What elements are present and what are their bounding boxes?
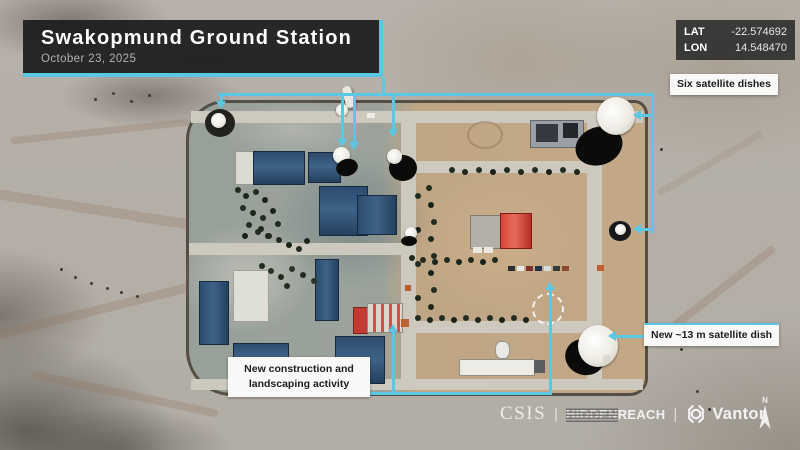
callout-construction-line1: New construction and xyxy=(232,362,366,377)
car-white xyxy=(367,113,375,118)
building-red-roof-construction xyxy=(353,307,368,334)
west-road-horizontal xyxy=(189,243,404,255)
callout-six-dishes-text: Six satellite dishes xyxy=(677,78,771,90)
tree-row xyxy=(255,229,261,235)
callout-construction-line2: landscaping activity xyxy=(232,377,366,392)
lot-road-top xyxy=(413,161,591,173)
date-label: October 23, 2025 xyxy=(41,53,379,65)
annotation-line xyxy=(392,331,395,393)
north-arrow-icon xyxy=(758,405,772,431)
satellite-dish xyxy=(211,113,226,128)
separator: | xyxy=(554,406,558,423)
annotation-line xyxy=(353,93,356,143)
vehicle xyxy=(544,266,551,271)
vantor-logo: Vantor xyxy=(685,403,765,425)
callout-construction: New construction and landscaping activit… xyxy=(228,357,370,397)
annotation-bracket-line xyxy=(218,93,654,96)
dish-shadow xyxy=(401,236,417,246)
building-white-flat xyxy=(233,270,269,322)
building-blue-roof xyxy=(315,259,339,321)
container-white xyxy=(484,247,493,253)
annotation-line xyxy=(341,93,344,140)
vehicle xyxy=(553,266,560,271)
title-panel: Swakopmund Ground Station October 23, 20… xyxy=(23,20,383,77)
vehicle xyxy=(535,266,542,271)
vehicle xyxy=(562,266,569,271)
arrow-down-icon xyxy=(337,139,347,147)
latitude-row: LAT -22.574692 xyxy=(684,24,787,40)
arrow-down-icon xyxy=(388,129,398,137)
building-white-roof xyxy=(235,151,255,185)
callout-new-dish-text: New ~13 m satellite dish xyxy=(651,329,772,341)
tree-cluster xyxy=(235,187,241,193)
arrow-left-icon xyxy=(633,110,641,120)
large-satellite-dish xyxy=(597,97,635,135)
vehicle xyxy=(517,266,524,271)
annotation-line xyxy=(356,392,552,395)
north-label: N xyxy=(762,396,768,405)
annotation-line xyxy=(392,93,395,130)
annotation-line xyxy=(549,289,552,395)
arrow-up-icon xyxy=(545,282,555,290)
lat-label: LAT xyxy=(684,24,705,40)
north-indicator: N xyxy=(757,396,773,431)
vehicle xyxy=(526,266,533,271)
dashed-circle-marking xyxy=(532,293,564,325)
arrow-down-icon xyxy=(349,142,359,150)
hidden-reach-logo: HIDDEN REACH xyxy=(566,407,665,422)
tree-row xyxy=(426,185,432,191)
satellite-dish xyxy=(387,149,402,164)
orange-container xyxy=(401,319,409,327)
longitude-row: LON 14.548470 xyxy=(684,40,787,56)
desert-speckles xyxy=(60,268,63,271)
truck-trailer xyxy=(459,359,535,376)
vantor-logo-icon xyxy=(685,403,707,425)
white-tank xyxy=(495,341,510,359)
callout-new-dish: New ~13 m satellite dish xyxy=(644,323,779,346)
page-title: Swakopmund Ground Station xyxy=(41,27,379,50)
satellite-dish xyxy=(615,224,626,235)
annotation-line xyxy=(641,228,653,231)
hidden-reach-logo-reach: REACH xyxy=(618,407,666,422)
arrow-up-icon xyxy=(388,324,398,332)
lat-value: -22.574692 xyxy=(731,24,787,40)
infographic-canvas: Six satellite dishes New ~13 m satellite… xyxy=(0,0,800,450)
dish-pedestal xyxy=(603,355,611,363)
logo-strip: CSIS | HIDDEN REACH | Vantor xyxy=(500,401,765,427)
equipment-dark xyxy=(536,124,558,142)
coordinates-panel: LAT -22.574692 LON 14.548470 xyxy=(676,20,795,60)
csis-logo: CSIS xyxy=(500,403,546,425)
annotation-line xyxy=(615,335,645,338)
container-white xyxy=(473,247,482,253)
building-gray xyxy=(470,215,502,249)
arrow-left-icon xyxy=(633,224,641,234)
tree-row xyxy=(409,255,415,261)
callout-six-dishes: Six satellite dishes xyxy=(670,74,778,95)
equipment-dark xyxy=(563,123,578,138)
building-blue-roof xyxy=(199,281,229,345)
tree-row xyxy=(449,167,455,173)
arrow-down-icon xyxy=(216,101,226,109)
separator: | xyxy=(673,406,677,423)
tree-row xyxy=(415,315,421,321)
arrow-left-icon xyxy=(608,331,616,341)
lon-label: LON xyxy=(684,40,707,56)
building-red-roof xyxy=(500,213,532,249)
orange-container xyxy=(405,285,411,291)
annotation-line xyxy=(641,114,653,117)
ground-ring-marking xyxy=(467,121,503,149)
vehicle-row xyxy=(507,265,570,272)
ground-station-compound xyxy=(186,100,648,396)
lon-value: 14.548470 xyxy=(735,40,787,56)
hidden-reach-logo-hidden: HIDDEN xyxy=(566,407,618,422)
truck-cab xyxy=(534,360,545,373)
vehicle xyxy=(508,266,515,271)
lot-road-bottom xyxy=(413,321,591,333)
shrub-cluster xyxy=(259,263,265,269)
building-blue-roof xyxy=(357,195,397,235)
orange-container xyxy=(597,265,604,271)
building-blue-roof xyxy=(253,151,305,185)
